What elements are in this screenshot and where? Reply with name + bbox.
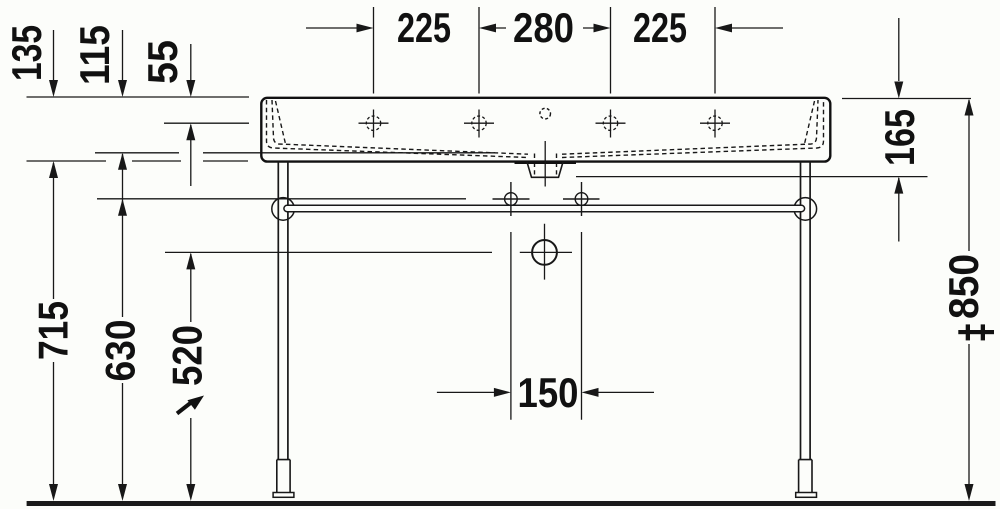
svg-text:850: 850 <box>940 254 987 319</box>
svg-text:630: 630 <box>97 320 144 382</box>
svg-text:280: 280 <box>513 4 574 51</box>
svg-text:55: 55 <box>139 40 186 84</box>
svg-text:225: 225 <box>633 4 687 51</box>
svg-text:150: 150 <box>518 369 579 416</box>
svg-text:715: 715 <box>30 301 77 360</box>
svg-text:520: 520 <box>164 325 211 386</box>
svg-text:135: 135 <box>3 25 50 81</box>
svg-text:165: 165 <box>876 109 923 166</box>
svg-text:115: 115 <box>71 25 118 85</box>
svg-text:225: 225 <box>397 4 451 51</box>
